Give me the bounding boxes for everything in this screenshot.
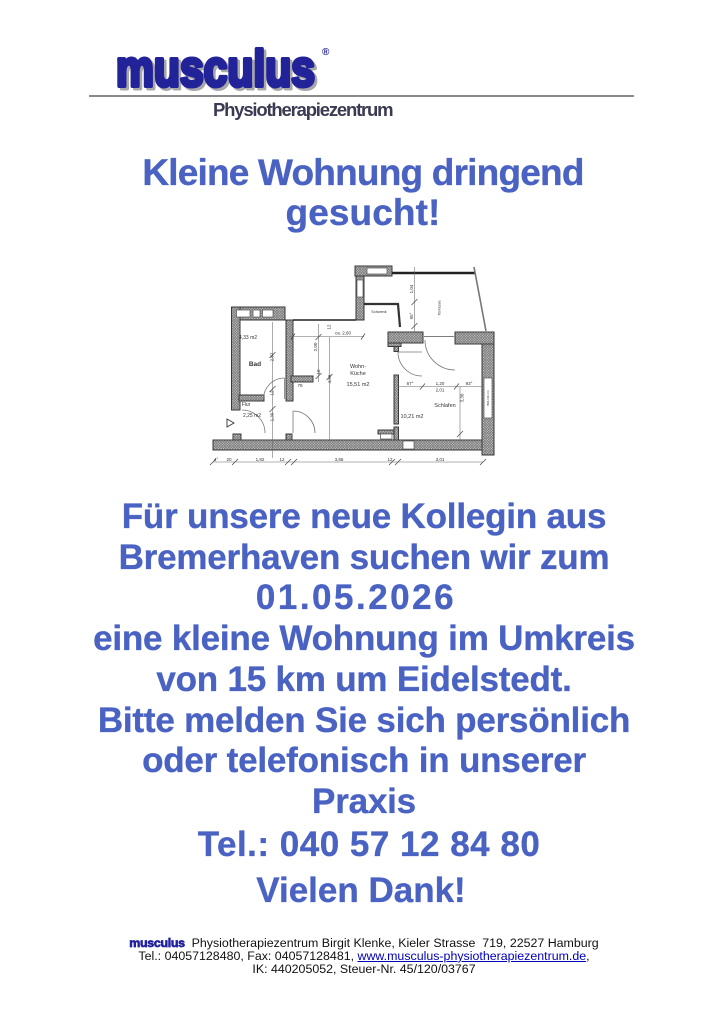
svg-text:ca. 2,60: ca. 2,60 xyxy=(335,331,352,336)
svg-text:15,51 m2: 15,51 m2 xyxy=(347,382,370,388)
svg-text:Schlafen: Schlafen xyxy=(434,403,455,409)
svg-text:3,30: 3,30 xyxy=(460,393,465,402)
svg-text:12: 12 xyxy=(387,457,393,462)
svg-text:16: 16 xyxy=(316,369,321,375)
svg-text:3,86: 3,86 xyxy=(335,457,344,462)
svg-text:Bad: Bad xyxy=(249,361,261,368)
svg-text:Schwenk: Schwenk xyxy=(371,310,387,314)
svg-text:10,21 m2: 10,21 m2 xyxy=(401,414,424,420)
svg-text:4°: 4° xyxy=(214,457,219,462)
svg-text:20: 20 xyxy=(226,457,232,462)
svg-text:1,82: 1,82 xyxy=(256,457,265,462)
svg-text:12: 12 xyxy=(279,457,285,462)
svg-text:2,01: 2,01 xyxy=(436,388,445,393)
svg-text:1,04: 1,04 xyxy=(409,284,414,293)
svg-text:1,20: 1,20 xyxy=(436,381,445,386)
svg-text:1,39: 1,39 xyxy=(270,412,275,421)
svg-text:Flur: Flur xyxy=(242,402,251,408)
svg-text:BRH 90 cm: BRH 90 cm xyxy=(486,390,490,406)
svg-text:2,87: 2,87 xyxy=(270,352,275,361)
svg-text:Terrasse: Terrasse xyxy=(437,300,442,316)
svg-text:musculus: musculus xyxy=(116,40,315,96)
svg-text:3,01: 3,01 xyxy=(436,457,445,462)
svg-text:2,00: 2,00 xyxy=(313,342,318,351)
svg-text:Küche: Küche xyxy=(350,371,366,377)
svg-text:12: 12 xyxy=(270,390,275,396)
svg-text:2,25 m2: 2,25 m2 xyxy=(243,413,261,419)
svg-text:4,56: 4,56 xyxy=(327,374,332,383)
svg-text:78: 78 xyxy=(297,383,303,388)
svg-text:95°: 95° xyxy=(409,312,414,319)
svg-text:93°: 93° xyxy=(466,381,473,386)
svg-text:67°: 67° xyxy=(407,381,414,386)
svg-text:4,33 m2: 4,33 m2 xyxy=(239,335,257,341)
svg-text:®: ® xyxy=(322,47,330,58)
svg-text:12: 12 xyxy=(327,324,332,330)
svg-text:Wohn-: Wohn- xyxy=(350,364,366,370)
